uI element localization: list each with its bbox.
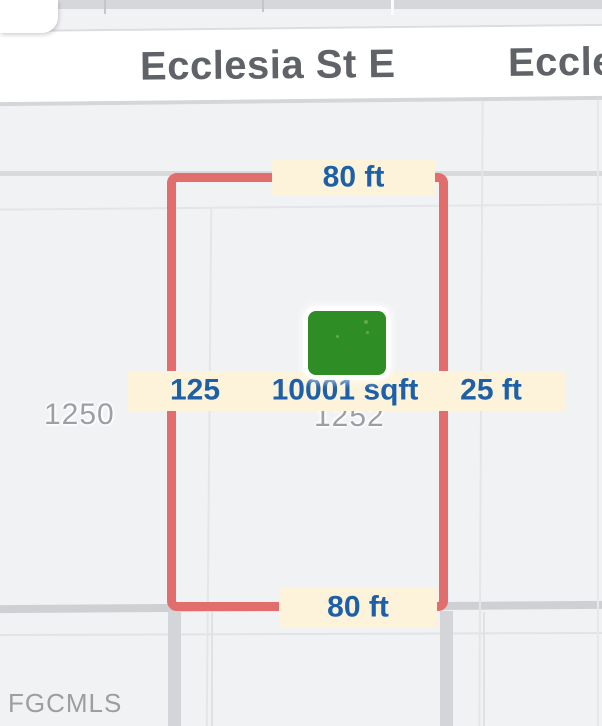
building-footprint [308,311,386,375]
bottom-width-value: 80 ft [327,590,389,624]
right-depth-value: 25 ft [460,373,522,407]
mls-watermark: FGCMLS [8,688,122,719]
parcel-line-lower-right [483,612,485,726]
measurement-top-width: 80 ft [272,159,435,196]
rooftop-detail [366,331,369,334]
rooftop-detail [336,335,339,338]
road-edge-right [440,611,453,726]
map-control-card[interactable] [0,0,58,33]
pavement-divider [391,0,394,15]
street-name-primary: Ecclesia St E [140,42,396,90]
top-width-value: 80 ft [323,160,385,194]
parcel-line-edge [597,99,599,726]
measurement-band: 125 10001 sqft 25 ft [128,371,565,411]
left-dimension-value: 125 [170,373,220,407]
parcel-line-lower-left [211,612,213,726]
pavement-tick [262,0,264,12]
lot-area-value: 10001 sqft [272,373,419,407]
parcel-map[interactable]: Ecclesia St E Eccle 1250 1252 80 ft 125 … [0,0,602,726]
parcel-number-1250: 1250 [44,398,115,432]
road-pavement-strip [0,0,602,9]
street-name-secondary-partial: Eccle [508,40,602,86]
street-band: Ecclesia St E Eccle [0,24,602,107]
rooftop-detail [364,320,368,324]
bottom-road-inner-line [0,632,602,636]
measurement-bottom-width: 80 ft [279,587,437,628]
pavement-tick [104,0,106,14]
road-edge-left [168,611,181,726]
